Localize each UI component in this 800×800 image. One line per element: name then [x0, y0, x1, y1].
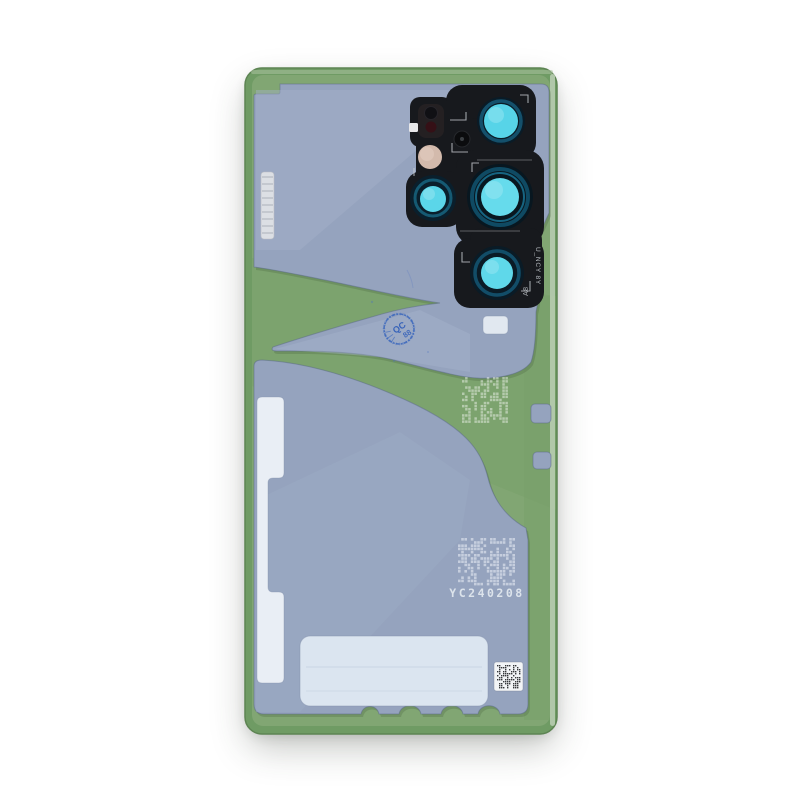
- camera-lens-bottom: [470, 246, 524, 300]
- flash-module: [418, 104, 444, 138]
- bottom-white-label: [300, 636, 488, 706]
- white-square-mark: [409, 123, 418, 132]
- glass-top-highlight: [251, 70, 553, 74]
- liner-right-tab-upper: [531, 404, 551, 423]
- sensor-window: [418, 145, 442, 169]
- camera-lens-mid-left: [410, 175, 456, 221]
- product-photo: YC240208 QC 88: [0, 0, 800, 800]
- qr-code: [494, 662, 523, 691]
- liner-right-tab-lower: [533, 452, 551, 469]
- camera-plate-code-text: U_NCY 8Y: [534, 247, 541, 285]
- serial-code-text: YC240208: [449, 586, 524, 600]
- small-sensor: [454, 131, 470, 147]
- camera-plate-code-secondary: A8: [523, 286, 530, 296]
- phone-back-illustration: YC240208 QC 88: [0, 0, 800, 800]
- pull-tab: [261, 172, 274, 239]
- camera-lens-main: [467, 164, 533, 230]
- camera-area-white-tab: [483, 316, 508, 334]
- camera-lens-top: [477, 97, 525, 145]
